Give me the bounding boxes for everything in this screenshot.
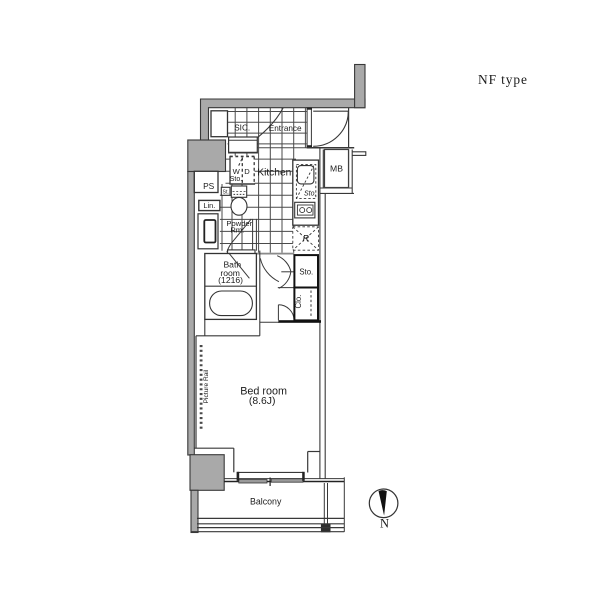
svg-text:Kitchen: Kitchen xyxy=(257,167,291,178)
svg-text:D: D xyxy=(244,167,250,176)
svg-text:W: W xyxy=(233,167,241,176)
svg-text:NF type: NF type xyxy=(478,72,528,87)
svg-text:Picture Rail: Picture Rail xyxy=(203,369,210,403)
svg-text:(1216): (1216) xyxy=(218,275,243,285)
svg-text:St.: St. xyxy=(223,190,229,196)
svg-text:MB: MB xyxy=(330,164,343,174)
svg-text:R: R xyxy=(303,233,310,243)
svg-text:Sto.: Sto. xyxy=(299,268,313,277)
svg-text:Entrance: Entrance xyxy=(269,124,302,133)
svg-text:N: N xyxy=(380,517,389,531)
svg-text:SIC.: SIC. xyxy=(234,124,250,133)
svg-text:Balcony: Balcony xyxy=(250,496,282,506)
svg-text:Sto.: Sto. xyxy=(230,176,243,183)
svg-text:Lin.: Lin. xyxy=(203,201,215,210)
svg-text:Sto.: Sto. xyxy=(304,191,317,198)
svg-text:PS: PS xyxy=(203,181,215,191)
svg-text:(8.6J): (8.6J) xyxy=(249,396,276,407)
svg-text:Clo.: Clo. xyxy=(294,295,303,309)
